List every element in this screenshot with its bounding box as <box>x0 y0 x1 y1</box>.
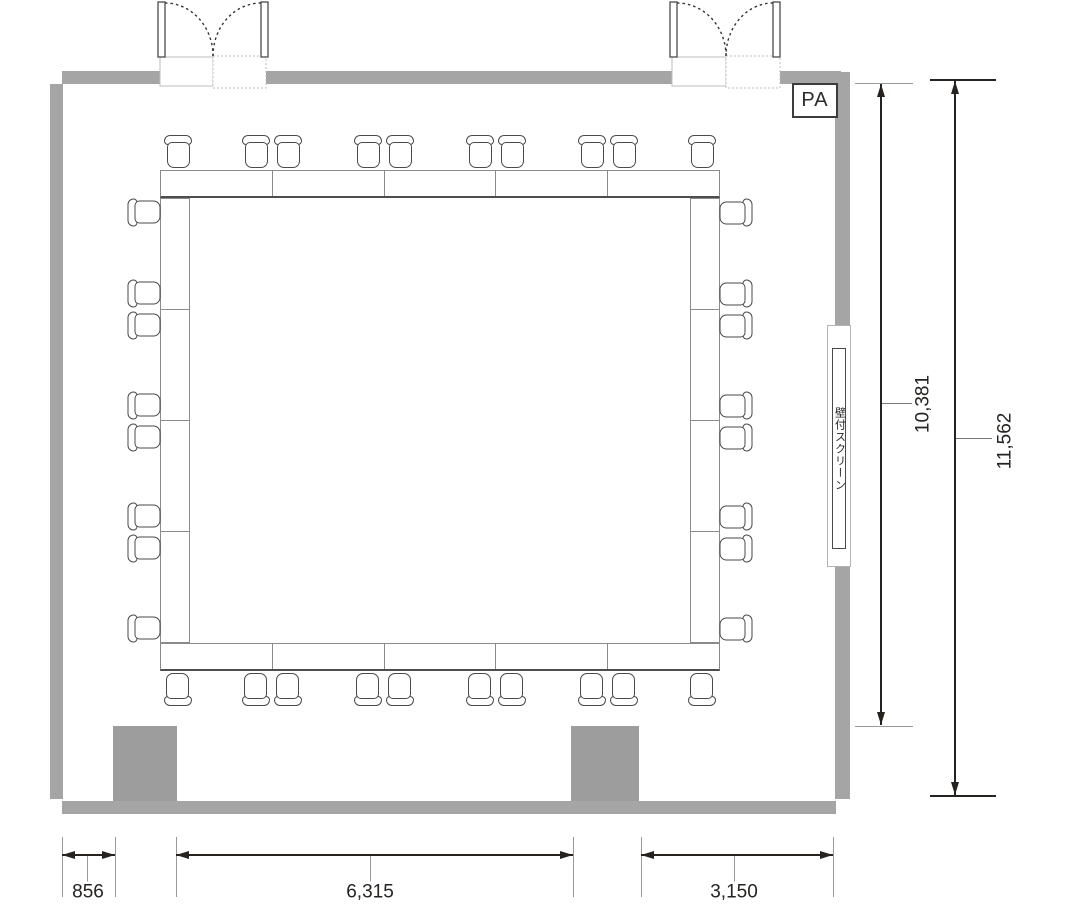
dim-arrow-left <box>62 851 75 859</box>
dim-leader <box>87 856 88 882</box>
chair <box>274 135 302 168</box>
chair <box>610 135 638 168</box>
chair <box>466 673 494 706</box>
chair-seat <box>389 673 412 699</box>
pa-label: PA <box>801 89 828 112</box>
chair-seat <box>720 537 746 560</box>
table-segment <box>691 199 719 309</box>
chair <box>274 673 302 706</box>
chair <box>164 673 192 706</box>
chair-seat <box>167 142 190 168</box>
double-door-left <box>155 0 271 92</box>
chair-seat <box>277 142 300 168</box>
table-segment <box>161 644 272 669</box>
dim-leader <box>882 403 912 404</box>
chair-seat <box>135 537 161 560</box>
table-column-right <box>690 198 720 643</box>
pa-box: PA <box>792 83 838 118</box>
chair-seat <box>720 201 746 224</box>
chair <box>498 673 526 706</box>
chair-seat <box>135 394 161 417</box>
door-leaf <box>773 2 780 57</box>
dim-arrow-up <box>951 81 959 94</box>
door-swing-arc <box>213 3 261 56</box>
table-segment <box>384 644 496 669</box>
dim-tick <box>930 79 996 81</box>
table-segment <box>161 199 189 309</box>
table-segment <box>384 171 496 196</box>
dim-tick <box>930 795 996 797</box>
chair <box>610 673 638 706</box>
table-segment <box>691 420 719 531</box>
table-column-left <box>160 198 190 643</box>
chair <box>128 615 161 643</box>
chair-seat <box>720 617 746 640</box>
extension-line <box>115 837 116 897</box>
dim-arrow-up <box>877 84 885 97</box>
chair-seat <box>357 673 380 699</box>
chair-seat <box>135 282 161 305</box>
chair-seat <box>135 505 161 528</box>
dim-value: 3,150 <box>707 882 761 905</box>
pillar-right <box>571 726 639 801</box>
table-segment <box>161 531 189 642</box>
chair <box>720 615 753 643</box>
chair <box>128 535 161 563</box>
chair-seat <box>501 673 524 699</box>
dim-value: 10,381 <box>913 372 936 436</box>
chair <box>164 135 192 168</box>
dim-tick <box>855 726 913 727</box>
dim-value: 6,315 <box>343 882 397 905</box>
chair-seat <box>167 673 190 699</box>
dim-arrow-left <box>176 851 189 859</box>
chair-seat <box>613 673 636 699</box>
dim-line <box>880 84 882 725</box>
dim-arrow-right <box>102 851 115 859</box>
table-band-top <box>160 170 720 198</box>
dim-line <box>176 854 573 856</box>
chair-seat <box>135 201 161 224</box>
table-segment <box>607 644 719 669</box>
door-leaf <box>261 2 268 57</box>
chair-seat <box>720 505 746 528</box>
table-segment <box>607 171 719 196</box>
chair <box>720 503 753 531</box>
chair-seat <box>720 314 746 337</box>
chair-seat <box>469 142 492 168</box>
table-segment <box>272 171 384 196</box>
wall-screen-label: 壁付スクリーン <box>834 407 845 491</box>
chair <box>354 673 382 706</box>
table-segment <box>691 309 719 420</box>
chair <box>128 503 161 531</box>
wall-left <box>50 84 63 799</box>
dim-arrow-down <box>951 782 959 795</box>
chair-seat <box>720 426 746 449</box>
table-segment <box>161 420 189 531</box>
chair-seat <box>245 673 268 699</box>
dim-leader <box>734 856 735 882</box>
chair-seat <box>135 617 161 640</box>
chair <box>688 135 716 168</box>
table-segment <box>161 309 189 420</box>
chair <box>128 280 161 308</box>
chair-seat <box>135 314 161 337</box>
chair-seat <box>691 673 714 699</box>
chair-seat <box>613 142 636 168</box>
chair-seat <box>581 673 604 699</box>
chair-seat <box>720 282 746 305</box>
dim-arrow-right <box>820 851 833 859</box>
table-segment <box>495 171 607 196</box>
chair <box>688 673 716 706</box>
chair <box>498 135 526 168</box>
chair <box>128 392 161 420</box>
dim-arrow-left <box>641 851 654 859</box>
chair-seat <box>389 142 412 168</box>
chair-seat <box>357 142 380 168</box>
chair <box>242 673 270 706</box>
chair-seat <box>501 142 524 168</box>
chair <box>128 199 161 227</box>
chair <box>354 135 382 168</box>
dim-arrow-right <box>560 851 573 859</box>
chair-seat <box>691 142 714 168</box>
chair <box>720 424 753 452</box>
table-segment <box>691 531 719 642</box>
pillar-left <box>113 726 177 801</box>
door-swing-arc <box>677 3 726 56</box>
floor-plan: PA 壁付スクリーン 10,381 11,562 <box>0 0 1068 916</box>
dim-value: 856 <box>69 882 107 905</box>
chair <box>720 312 753 340</box>
chair <box>128 312 161 340</box>
chair <box>386 673 414 706</box>
chair <box>128 424 161 452</box>
dim-value: 11,562 <box>995 410 1018 473</box>
door-swing-arc <box>165 3 213 56</box>
extension-line <box>641 837 642 897</box>
chair <box>242 135 270 168</box>
chair <box>720 199 753 227</box>
dim-leader <box>370 856 371 882</box>
double-door-right <box>667 0 783 92</box>
wall-bottom <box>62 801 836 814</box>
chair-seat <box>720 394 746 417</box>
wall-screen: 壁付スクリーン <box>827 325 851 567</box>
chair <box>466 135 494 168</box>
door-leaf <box>158 2 165 57</box>
door-leaf <box>670 2 677 57</box>
chair <box>578 135 606 168</box>
table-band-bottom <box>160 643 720 671</box>
chair <box>720 280 753 308</box>
chair-seat <box>245 142 268 168</box>
dim-arrow-down <box>877 712 885 725</box>
door-swing-arc <box>726 3 773 56</box>
chair <box>720 392 753 420</box>
chair <box>720 535 753 563</box>
chair-seat <box>277 673 300 699</box>
table-segment <box>161 171 272 196</box>
dim-leader <box>956 438 992 439</box>
chair-seat <box>135 426 161 449</box>
wall-screen-frame: 壁付スクリーン <box>832 348 846 549</box>
chair-seat <box>469 673 492 699</box>
chair <box>578 673 606 706</box>
extension-line <box>833 837 834 897</box>
extension-line <box>62 837 63 897</box>
extension-line <box>573 837 574 897</box>
extension-line <box>176 837 177 897</box>
chair <box>386 135 414 168</box>
dim-line <box>641 854 833 856</box>
chair-seat <box>581 142 604 168</box>
table-segment <box>272 644 384 669</box>
table-segment <box>495 644 607 669</box>
